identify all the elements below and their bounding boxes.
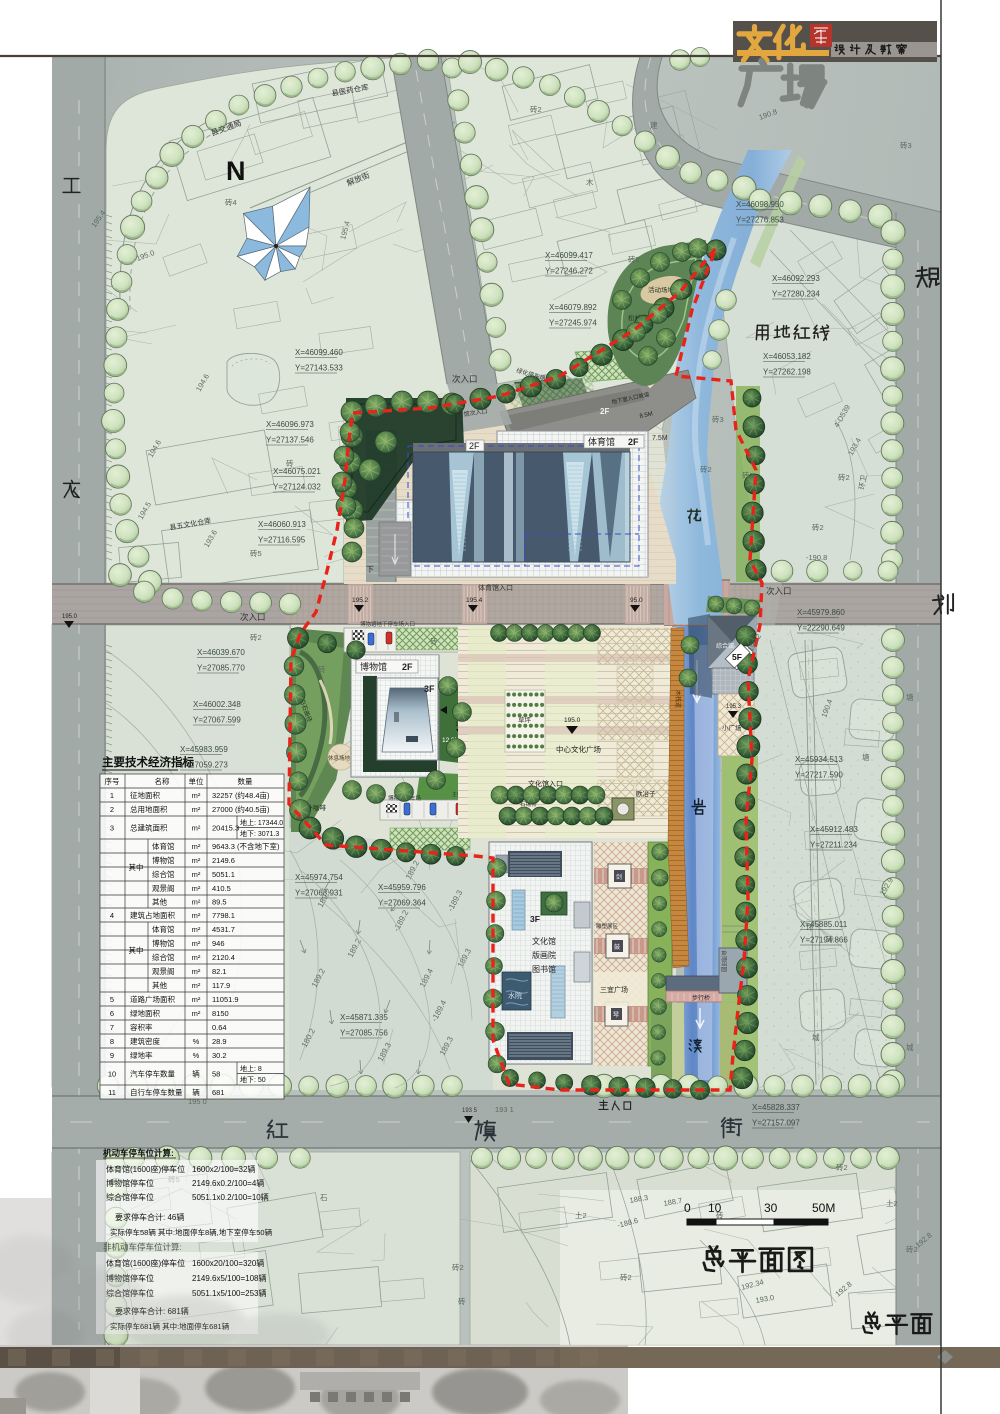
svg-text:土2: 土2 (575, 1210, 587, 1220)
svg-text:Y=27157.097: Y=27157.097 (752, 1119, 800, 1128)
svg-text:次入口: 次入口 (766, 586, 792, 596)
svg-text:下: 下 (366, 565, 374, 574)
svg-text:95.0: 95.0 (630, 597, 643, 604)
svg-text:次入口: 次入口 (452, 374, 478, 384)
svg-text:步行桥: 步行桥 (692, 994, 710, 1002)
svg-text:X=45912.483: X=45912.483 (810, 825, 858, 834)
svg-text:X=45934.513: X=45934.513 (795, 755, 843, 764)
svg-text:Y=27262.198: Y=27262.198 (763, 368, 811, 377)
svg-text:X=46039.670: X=46039.670 (197, 648, 245, 657)
svg-text:辆: 辆 (192, 1068, 200, 1078)
svg-text:地下: 50: 地下: 50 (240, 1075, 266, 1084)
svg-text:水院: 水院 (508, 991, 522, 1000)
svg-text:m²: m² (192, 995, 201, 1004)
svg-text:博物馆停车位: 博物馆停车位 (106, 1178, 154, 1188)
svg-text:地上: 8: 地上: 8 (240, 1064, 262, 1073)
svg-text:砖: 砖 (826, 934, 834, 944)
svg-text:砖2: 砖2 (250, 632, 262, 642)
svg-text:3F: 3F (530, 914, 540, 924)
svg-text:X=46096.973: X=46096.973 (266, 420, 314, 429)
svg-text:体育馆: 体育馆 (152, 924, 175, 934)
svg-text:Y=27246.272: Y=27246.272 (545, 267, 593, 276)
svg-text:m²: m² (192, 897, 201, 906)
svg-text:综合馆: 综合馆 (152, 869, 175, 879)
svg-text:观景阁: 观景阁 (152, 883, 175, 893)
svg-text:非机动车停车位计算:: 非机动车停车位计算: (103, 1242, 182, 1252)
svg-text:946: 946 (212, 939, 225, 948)
svg-text:2149.6: 2149.6 (212, 856, 235, 865)
svg-text:城: 城 (812, 1033, 820, 1042)
svg-text:体育馆(1600座)停车位: 体育馆(1600座)停车位 (106, 1258, 185, 1268)
svg-text:X=45828.337: X=45828.337 (752, 1103, 800, 1112)
svg-text:Y=27069.364: Y=27069.364 (378, 899, 426, 908)
svg-text:5F: 5F (732, 652, 742, 662)
svg-text:5051.1: 5051.1 (212, 870, 235, 879)
svg-text:自行车停车数量: 自行车停车数量 (130, 1087, 183, 1097)
svg-text:82.1: 82.1 (212, 967, 227, 976)
svg-text:博物馆地下停车场入口: 博物馆地下停车场入口 (360, 620, 415, 628)
svg-text:30: 30 (764, 1201, 778, 1215)
svg-text:数量: 数量 (238, 776, 253, 786)
svg-text:117.9: 117.9 (212, 981, 230, 990)
svg-text:8: 8 (110, 1037, 114, 1046)
svg-text:其他: 其他 (152, 896, 167, 906)
svg-text:27000 (约40.5亩): 27000 (约40.5亩) (212, 804, 270, 814)
svg-text:Y=27194.866: Y=27194.866 (800, 936, 848, 945)
svg-text:单位: 单位 (189, 776, 204, 786)
svg-text:11051.9: 11051.9 (212, 995, 239, 1004)
svg-text:m²: m² (192, 925, 201, 934)
svg-text:20415.3: 20415.3 (212, 823, 239, 832)
svg-text:总用地面积: 总用地面积 (130, 804, 168, 814)
svg-text:Y=27211.234: Y=27211.234 (810, 841, 858, 850)
svg-text:主要技术经济指标: 主要技术经济指标 (102, 755, 194, 769)
svg-text:m²: m² (192, 981, 201, 990)
svg-text:名称: 名称 (155, 776, 170, 786)
svg-text:中心文化广场: 中心文化广场 (556, 744, 601, 754)
svg-text:1600x20/100=320辆: 1600x20/100=320辆 (192, 1258, 264, 1268)
svg-text:10: 10 (708, 1201, 722, 1215)
svg-text:休息场地: 休息场地 (328, 754, 351, 762)
svg-text:195.2: 195.2 (352, 597, 369, 604)
svg-text:4: 4 (110, 911, 114, 920)
svg-text:草坪: 草坪 (518, 715, 532, 724)
svg-text:195.3: 195.3 (726, 704, 742, 710)
svg-text:Y=27116.595: Y=27116.595 (258, 536, 306, 545)
svg-text:m²: m² (192, 791, 201, 800)
svg-text:版画院: 版画院 (532, 950, 556, 960)
svg-text:1600x2/100=32辆: 1600x2/100=32辆 (192, 1164, 255, 1174)
svg-text:其他: 其他 (152, 980, 167, 990)
svg-text:X=45983.959: X=45983.959 (180, 745, 228, 754)
svg-text:28.9: 28.9 (212, 1037, 227, 1046)
svg-text:其中: 其中 (129, 862, 144, 872)
svg-text:砖2: 砖2 (452, 1262, 464, 1272)
svg-text:X=46092.293: X=46092.293 (772, 274, 820, 283)
svg-text:30.2: 30.2 (212, 1051, 227, 1060)
svg-text:博物馆: 博物馆 (152, 855, 175, 865)
svg-text:砖: 砖 (430, 636, 438, 646)
svg-text:%: % (193, 1051, 200, 1060)
svg-text:砖3: 砖3 (712, 414, 724, 424)
svg-text:195.0: 195.0 (62, 614, 78, 620)
svg-text:-190.8: -190.8 (806, 553, 827, 562)
svg-text:m²: m² (192, 842, 201, 851)
svg-text:2149.6x5/100=108辆: 2149.6x5/100=108辆 (192, 1273, 267, 1283)
svg-text:5051.1x0.2/100=10辆: 5051.1x0.2/100=10辆 (192, 1192, 269, 1202)
svg-text:三宜广场: 三宜广场 (600, 985, 628, 994)
svg-text:5: 5 (110, 995, 114, 1004)
svg-text:7798.1: 7798.1 (212, 911, 235, 920)
svg-text:681: 681 (212, 1088, 225, 1097)
svg-text:观景阁: 观景阁 (152, 966, 175, 976)
svg-text:木栈道: 木栈道 (674, 690, 682, 708)
svg-text:4531.7: 4531.7 (212, 925, 235, 934)
svg-text:Y=22290.649: Y=22290.649 (797, 624, 845, 633)
svg-text:体育馆: 体育馆 (588, 436, 615, 447)
svg-text:Y=27124.032: Y=27124.032 (273, 483, 321, 492)
svg-text:Y=27217.590: Y=27217.590 (795, 771, 843, 780)
svg-text:砖: 砖 (458, 1296, 466, 1306)
svg-text:砖2: 砖2 (700, 464, 712, 474)
svg-text:汽车停车数量: 汽车停车数量 (130, 1068, 175, 1078)
svg-text:图书馆: 图书馆 (532, 964, 556, 974)
svg-text:8150: 8150 (212, 1009, 229, 1018)
svg-text:X=46099.417: X=46099.417 (545, 251, 593, 260)
svg-text:砖: 砖 (318, 664, 326, 674)
svg-text:绿地率: 绿地率 (130, 1050, 153, 1060)
svg-text:m²: m² (192, 884, 201, 893)
svg-text:台湾印园: 台湾印园 (720, 950, 728, 973)
svg-text:m²: m² (192, 870, 201, 879)
svg-text:32257 (约48.4亩): 32257 (约48.4亩) (212, 790, 270, 800)
svg-text:7.5M: 7.5M (652, 435, 668, 442)
svg-text:塘: 塘 (906, 692, 914, 702)
svg-text:综合馆停车位: 综合馆停车位 (106, 1192, 154, 1202)
svg-text:2F: 2F (469, 441, 480, 451)
svg-text:m²: m² (192, 856, 201, 865)
svg-text:地上: 17344.0: 地上: 17344.0 (240, 818, 283, 827)
svg-text:建筑占地面积: 建筑占地面积 (130, 910, 175, 920)
svg-text:容积率: 容积率 (130, 1022, 153, 1032)
svg-text:193 5: 193 5 (462, 1108, 478, 1114)
svg-text:要求停车合计: 46辆: 要求停车合计: 46辆 (115, 1212, 184, 1222)
svg-text:2120.4: 2120.4 (212, 953, 235, 962)
svg-text:m²: m² (192, 967, 201, 976)
svg-text:雕塑展区: 雕塑展区 (596, 922, 619, 930)
svg-text:Y=27280.234: Y=27280.234 (772, 290, 820, 299)
svg-text:X=46079.892: X=46079.892 (549, 303, 597, 312)
svg-text:建筑密度: 建筑密度 (130, 1036, 160, 1046)
svg-text:X=46075.021: X=46075.021 (273, 467, 321, 476)
svg-text:次入口: 次入口 (240, 612, 266, 622)
svg-text:m²: m² (192, 911, 201, 920)
svg-text:3: 3 (110, 823, 114, 832)
svg-text:3F: 3F (424, 684, 435, 694)
svg-text:m²: m² (192, 805, 201, 814)
svg-text:50M: 50M (812, 1201, 835, 1215)
svg-text:11: 11 (108, 1088, 116, 1097)
svg-text:土2: 土2 (886, 1198, 898, 1208)
svg-text:体育馆: 体育馆 (152, 841, 175, 851)
svg-text:195.0: 195.0 (564, 717, 581, 724)
svg-text:m²: m² (192, 939, 201, 948)
svg-text:X=46098.950: X=46098.950 (736, 200, 784, 209)
svg-text:琴: 琴 (613, 1012, 619, 1019)
svg-text:N: N (226, 156, 246, 186)
svg-text:6: 6 (110, 1009, 114, 1018)
svg-text:X=45979.860: X=45979.860 (797, 608, 845, 617)
svg-text:X=45885.011: X=45885.011 (800, 920, 848, 929)
svg-text:砖3: 砖3 (742, 470, 754, 480)
svg-text:Y=27085.756: Y=27085.756 (340, 1029, 388, 1038)
svg-text:石: 石 (320, 1193, 328, 1202)
svg-text:2F: 2F (402, 662, 413, 672)
svg-text:193 1: 193 1 (495, 1105, 514, 1114)
svg-text:10: 10 (108, 1069, 116, 1078)
svg-text:砖2: 砖2 (838, 472, 850, 482)
svg-text:博物馆: 博物馆 (152, 938, 175, 948)
svg-text:m²: m² (192, 823, 201, 832)
svg-text:砖2: 砖2 (620, 1272, 632, 1282)
svg-text:砖2: 砖2 (836, 1162, 848, 1172)
svg-text:城: 城 (906, 1043, 914, 1052)
svg-text:总建筑面积: 总建筑面积 (130, 822, 168, 832)
svg-text:7: 7 (110, 1023, 114, 1032)
svg-text:0: 0 (684, 1201, 691, 1215)
svg-text:绿地面积: 绿地面积 (130, 1008, 160, 1018)
svg-text:辆: 辆 (192, 1087, 200, 1097)
svg-text:机动车停车位计算:: 机动车停车位计算: (103, 1148, 174, 1158)
svg-text:鼓: 鼓 (614, 943, 620, 951)
svg-text:实际停车58辆 其中:地面停车8辆,地下室停车50辆: 实际停车58辆 其中:地面停车8辆,地下室停车50辆 (110, 1227, 273, 1237)
svg-text:砖2: 砖2 (812, 522, 824, 532)
svg-text:1: 1 (110, 791, 114, 800)
svg-text:道路广场面积: 道路广场面积 (130, 994, 175, 1004)
svg-text:Y=27143.533: Y=27143.533 (295, 364, 343, 373)
svg-text:58: 58 (212, 1069, 220, 1078)
svg-text:9: 9 (110, 1051, 114, 1060)
svg-text:Y=27137.546: Y=27137.546 (266, 436, 314, 445)
svg-text:木: 木 (586, 177, 594, 187)
svg-text:序号: 序号 (105, 776, 120, 786)
svg-text:X=45871.385: X=45871.385 (340, 1013, 388, 1022)
svg-text:9643.3 (不含地下室): 9643.3 (不含地下室) (212, 841, 280, 851)
svg-text:Y=27245.974: Y=27245.974 (549, 319, 597, 328)
svg-text:410.5: 410.5 (212, 884, 231, 893)
svg-text:Y=27067.599: Y=27067.599 (193, 716, 241, 725)
svg-text:0.64: 0.64 (212, 1023, 227, 1032)
svg-text:博物馆: 博物馆 (360, 661, 387, 672)
svg-text:征地面积: 征地面积 (130, 790, 160, 800)
svg-text:其中: 其中 (129, 945, 144, 955)
svg-text:m²: m² (192, 1009, 201, 1018)
svg-text:2F: 2F (600, 407, 609, 416)
svg-text:2F: 2F (628, 437, 639, 447)
svg-text:195.4: 195.4 (466, 597, 483, 604)
svg-text:Y=27085.770: Y=27085.770 (197, 664, 245, 673)
svg-text:X=46099.460: X=46099.460 (295, 348, 343, 357)
svg-text:砖2: 砖2 (628, 254, 640, 264)
svg-text:综合馆: 综合馆 (152, 952, 175, 962)
svg-text:X=46060.913: X=46060.913 (258, 520, 306, 529)
svg-text:砖5: 砖5 (250, 548, 262, 558)
svg-text:剑: 剑 (616, 873, 622, 881)
svg-text:2: 2 (110, 805, 114, 814)
svg-text:建: 建 (650, 120, 658, 130)
svg-text:砖2: 砖2 (530, 104, 542, 114)
svg-text:地下: 3071.3: 地下: 3071.3 (240, 829, 279, 838)
svg-text:砖4: 砖4 (225, 197, 237, 207)
svg-text:Y=27068.931: Y=27068.931 (295, 889, 343, 898)
svg-text:欧冶子: 欧冶子 (636, 789, 656, 798)
svg-text:砖2: 砖2 (906, 1244, 918, 1254)
svg-text:砖: 砖 (286, 458, 294, 468)
svg-text:89.5: 89.5 (212, 897, 227, 906)
svg-text:体育馆(1600座)停车位: 体育馆(1600座)停车位 (106, 1164, 185, 1174)
svg-text:体育馆入口: 体育馆入口 (478, 583, 513, 592)
svg-text:小广场: 小广场 (722, 723, 742, 732)
svg-text:X=46002.348: X=46002.348 (193, 700, 241, 709)
svg-text:%: % (193, 1037, 200, 1046)
svg-text:塘: 塘 (862, 752, 870, 762)
svg-text:2149.6x0.2/100=4辆: 2149.6x0.2/100=4辆 (192, 1178, 264, 1188)
svg-text:综合馆: 综合馆 (716, 642, 734, 650)
svg-text:Y=27276.853: Y=27276.853 (736, 216, 784, 225)
svg-text:X=46053.182: X=46053.182 (763, 352, 811, 361)
svg-text:砖3: 砖3 (900, 140, 912, 150)
svg-text:文化馆: 文化馆 (532, 936, 556, 946)
svg-text:X=45974.754: X=45974.754 (295, 873, 343, 882)
svg-text:m²: m² (192, 953, 201, 962)
